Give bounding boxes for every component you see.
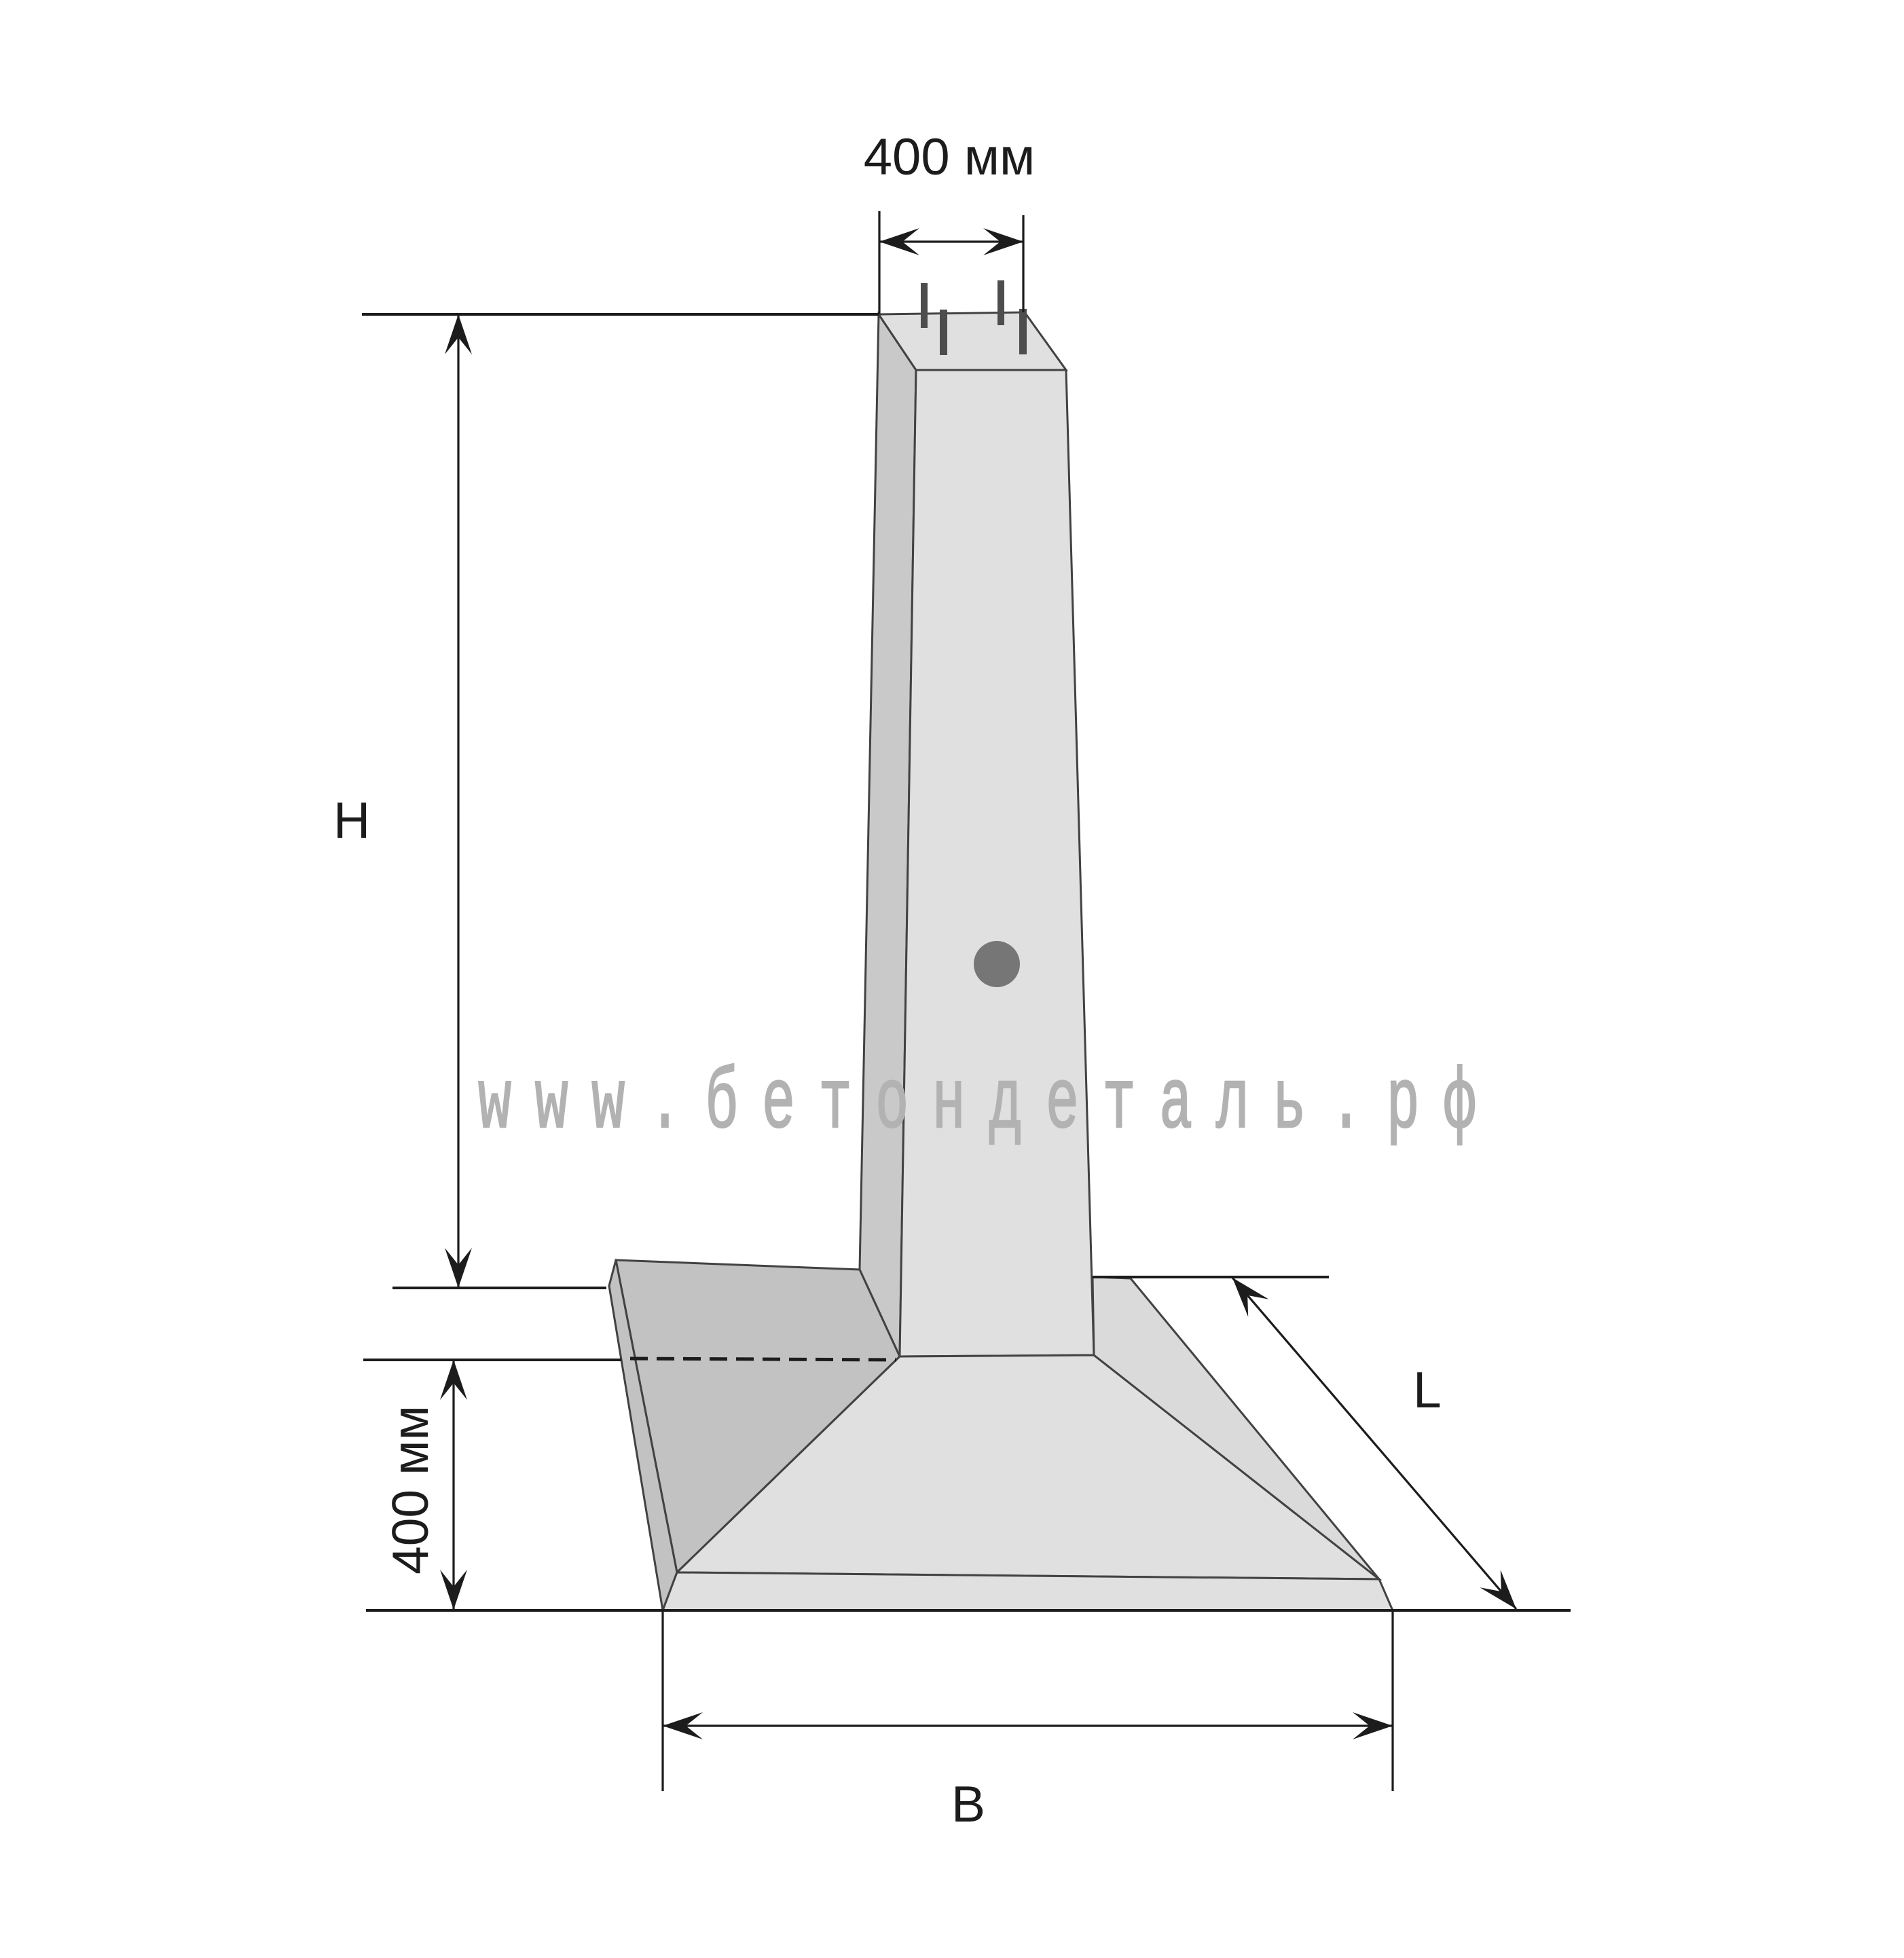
- svg-text:H: H: [333, 792, 370, 849]
- svg-text:B: B: [951, 1775, 985, 1832]
- svg-text:400 мм: 400 мм: [382, 1405, 439, 1574]
- svg-text:L: L: [1413, 1361, 1442, 1418]
- svg-text:400 мм: 400 мм: [864, 128, 1035, 186]
- svg-text:www.бетондеталь.рф: www.бетондеталь.рф: [478, 1056, 1500, 1153]
